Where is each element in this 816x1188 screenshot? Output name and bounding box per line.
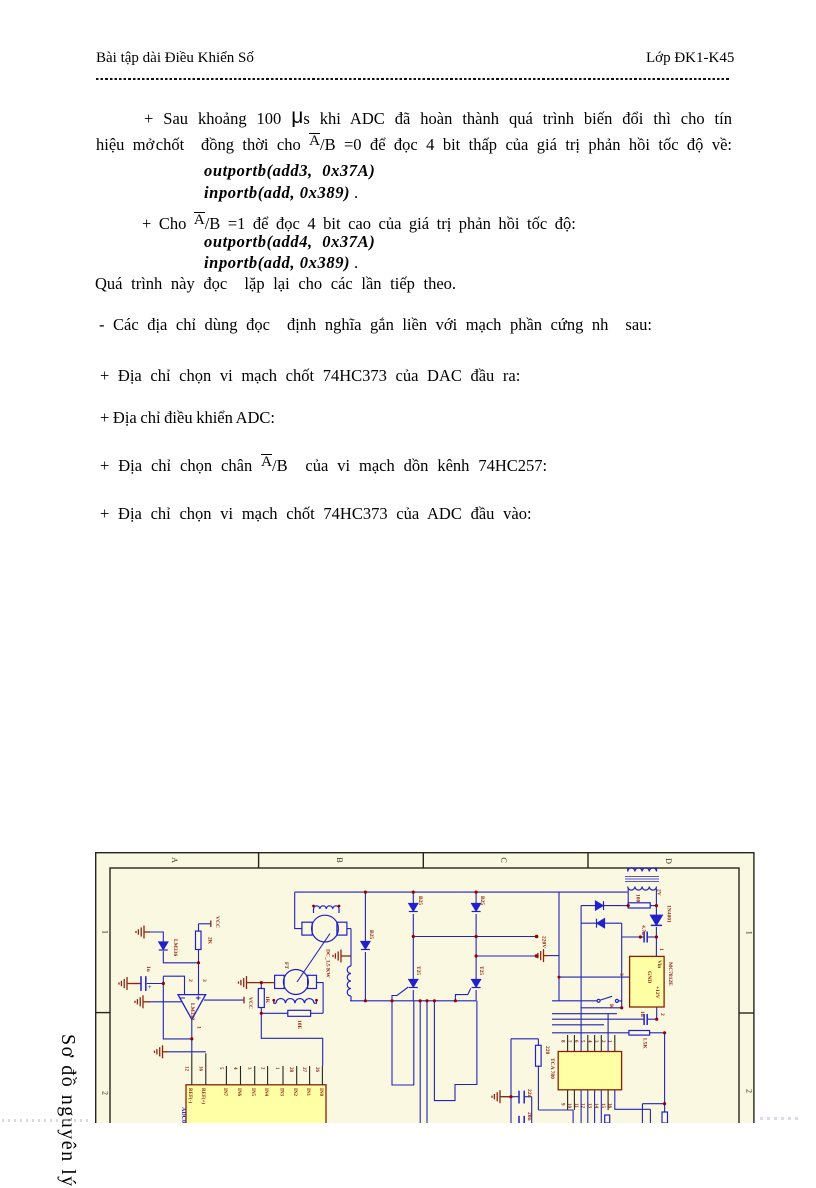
svg-text:220V: 220V [541, 936, 547, 948]
svg-text:IN1: IN1 [305, 1088, 310, 1097]
svg-text:26: 26 [314, 1067, 319, 1073]
svg-text:2: 2 [187, 979, 193, 982]
svg-text:TCA 780: TCA 780 [549, 1058, 555, 1079]
svg-text:B25: B25 [368, 930, 374, 939]
svg-text:IN4: IN4 [263, 1088, 268, 1097]
svg-text:FT: FT [283, 962, 289, 969]
svg-text:+12V: +12V [654, 986, 660, 999]
svg-text:REF(+): REF(+) [200, 1088, 205, 1105]
svg-text:1u: 1u [639, 1011, 645, 1017]
svg-text:B: B [335, 857, 344, 862]
svg-text:14: 14 [593, 1103, 598, 1109]
svg-text:12: 12 [580, 1103, 585, 1109]
svg-text:VCC: VCC [214, 916, 220, 928]
svg-text:REF(-): REF(-) [187, 1088, 192, 1103]
svg-text:3: 3 [618, 973, 624, 976]
svg-text:1K: 1K [264, 996, 270, 1004]
svg-text:B25: B25 [479, 896, 485, 905]
svg-text:DC_1,5 KW: DC_1,5 KW [325, 949, 331, 978]
svg-text:2V: 2V [656, 889, 662, 896]
svg-text:LM358: LM358 [189, 1003, 195, 1020]
svg-text:13: 13 [586, 1103, 591, 1109]
svg-text:20n: 20n [526, 1112, 532, 1121]
svg-text:K: K [608, 1004, 614, 1009]
svg-text:10E: 10E [296, 1020, 302, 1030]
svg-text:4.7u: 4.7u [640, 925, 646, 935]
svg-text:IN0: IN0 [318, 1088, 323, 1097]
svg-text:VCC: VCC [247, 997, 253, 1009]
svg-text:D: D [664, 858, 673, 864]
svg-text:22n: 22n [526, 1089, 532, 1098]
svg-text:27: 27 [301, 1067, 306, 1073]
svg-text:IN2: IN2 [292, 1088, 297, 1097]
svg-text:IN3: IN3 [279, 1088, 284, 1097]
svg-text:2: 2 [659, 1013, 665, 1016]
svg-text:Vin: Vin [656, 960, 662, 968]
svg-text:1: 1 [658, 948, 664, 951]
svg-text:2K: 2K [207, 937, 213, 945]
svg-text:12: 12 [183, 1066, 188, 1072]
svg-text:IN5: IN5 [250, 1088, 255, 1097]
svg-text:T25: T25 [415, 966, 421, 975]
svg-text:1.5K: 1.5K [642, 1038, 648, 1050]
svg-text:B25: B25 [417, 896, 423, 905]
svg-text:C: C [499, 857, 508, 862]
svg-text:2: 2 [101, 1091, 110, 1095]
svg-text:15: 15 [600, 1103, 605, 1109]
svg-text:A: A [170, 857, 179, 863]
svg-text:1N4001: 1N4001 [666, 905, 672, 923]
svg-text:1: 1 [744, 931, 753, 935]
svg-text:16: 16 [607, 1103, 612, 1109]
svg-text:220: 220 [544, 1046, 550, 1055]
svg-text:IN7: IN7 [222, 1088, 227, 1097]
svg-text:1: 1 [101, 930, 110, 934]
svg-text:1: 1 [196, 1026, 202, 1029]
svg-text:ADC0809: ADC0809 [180, 1107, 186, 1123]
svg-text:+: + [148, 985, 152, 991]
svg-text:T25: T25 [478, 966, 484, 975]
svg-text:11: 11 [573, 1103, 578, 1108]
svg-text:1u: 1u [145, 966, 151, 972]
svg-text:28: 28 [288, 1067, 293, 1073]
svg-text:IN6: IN6 [236, 1088, 241, 1097]
svg-text:100: 100 [635, 894, 641, 903]
svg-text:10: 10 [566, 1103, 571, 1109]
svg-text:2: 2 [744, 1089, 753, 1093]
svg-text:GND: GND [646, 971, 652, 983]
svg-text:3: 3 [201, 979, 207, 982]
svg-text:MC7812E: MC7812E [667, 962, 673, 986]
svg-text:LM336: LM336 [172, 939, 178, 956]
svg-text:16: 16 [197, 1066, 202, 1072]
